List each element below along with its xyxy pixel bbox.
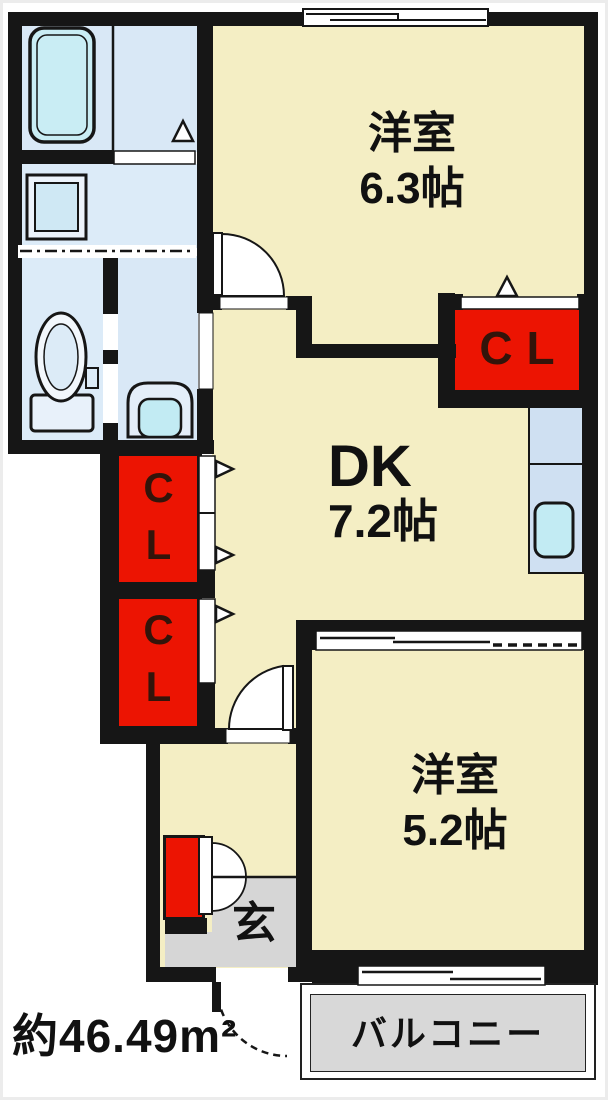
wall — [103, 350, 118, 364]
wall — [584, 12, 598, 985]
floor-plan: バルコニー — [0, 0, 608, 1100]
entrance-floor — [165, 932, 212, 967]
window-top — [303, 9, 488, 26]
wall — [197, 26, 213, 313]
balcony-label: バルコニー — [351, 1011, 545, 1056]
entrance-label: 玄 — [232, 896, 276, 951]
vanity-floor — [118, 256, 198, 442]
room-size: 6.3帖 — [312, 161, 512, 216]
bath-door — [114, 151, 195, 164]
kitchen-counter — [528, 406, 584, 574]
wall — [541, 965, 584, 985]
bathroom-floor — [22, 26, 198, 152]
wall — [296, 620, 584, 632]
closet-label-text: CL — [465, 320, 568, 378]
wall — [100, 583, 215, 598]
closet-left-top-label: CL — [137, 464, 179, 578]
wall — [22, 150, 114, 164]
washroom-floor — [22, 164, 198, 248]
room-name: DK — [328, 438, 438, 496]
wall — [286, 296, 312, 310]
wall — [146, 967, 216, 982]
toilet-floor — [22, 256, 103, 442]
wall — [304, 344, 456, 358]
wall — [8, 12, 305, 26]
wall — [165, 918, 207, 934]
closet-left-bottom-label: CL — [137, 606, 179, 720]
dk-corridor-floor — [212, 618, 296, 730]
wall — [103, 258, 118, 314]
wall — [568, 620, 584, 650]
wall — [312, 965, 360, 985]
room-label-west-room-2: 洋室 5.2帖 — [355, 748, 555, 858]
balcony-floor: バルコニー — [310, 994, 586, 1072]
wall — [438, 393, 584, 408]
room-name: 洋室 — [312, 106, 512, 161]
wall — [100, 728, 228, 744]
wall — [197, 389, 213, 454]
wall — [212, 296, 222, 310]
shoe-cabinet — [163, 835, 205, 920]
room-label-west-room-1: 洋室 6.3帖 — [312, 106, 512, 216]
wall — [296, 620, 312, 982]
closet-right-label: CL — [450, 303, 584, 395]
room-size: 5.2帖 — [355, 803, 555, 858]
wall — [486, 12, 598, 26]
room-size: 7.2帖 — [328, 496, 438, 547]
room-label-dk: DK 7.2帖 — [328, 438, 438, 547]
total-area-label: 約46.49m² — [12, 1008, 237, 1066]
room-name: 洋室 — [355, 748, 555, 803]
washroom-door-opening — [199, 313, 213, 389]
wall — [296, 620, 318, 650]
wall — [8, 12, 22, 454]
wall — [103, 423, 118, 440]
wall — [146, 728, 160, 982]
